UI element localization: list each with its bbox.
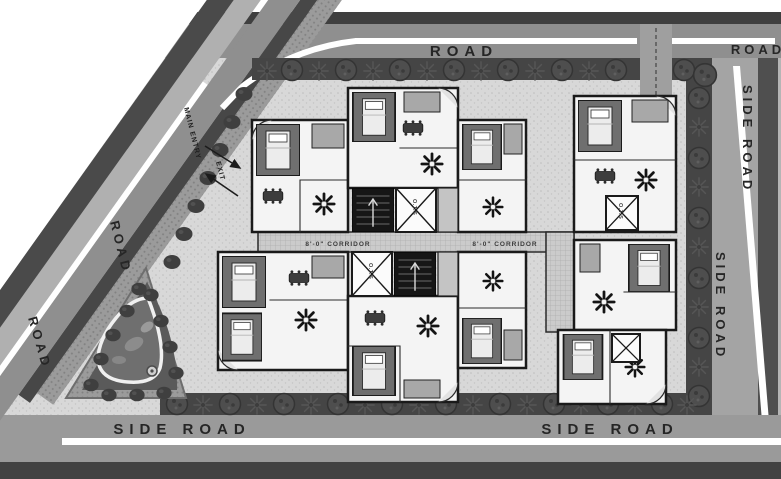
ots-shaft: O.T.S [606, 196, 638, 230]
driveway [640, 24, 672, 102]
bottom-left-side-road-label: SIDE ROAD [113, 421, 250, 438]
palm-icon [690, 238, 708, 256]
tree-icon [282, 60, 303, 81]
shrub-icon [83, 379, 98, 392]
palm-icon [310, 62, 328, 80]
tree-icon [689, 88, 710, 109]
shrub-icon [164, 255, 181, 269]
apartment-unit-b3 [558, 330, 666, 404]
building-cluster: O.T.S O.T.S O.T.S [218, 88, 676, 404]
site-plan-drawing: ROAD ROAD SIDE ROAD SIDE ROAD SIDE ROAD … [0, 0, 781, 479]
ots-shaft: O.T.S [396, 188, 436, 232]
palm-icon [518, 396, 536, 414]
right-lower-side-road-label: SIDE ROAD [713, 252, 728, 360]
shrub-icon [131, 283, 146, 296]
ots-shaft: O.T.S [352, 252, 392, 296]
apartment-unit-a5 [348, 296, 458, 402]
top-right-road-label: ROAD [731, 42, 781, 57]
palm-icon [248, 396, 266, 414]
staircase [352, 188, 394, 232]
top-road-label: ROAD [430, 43, 498, 60]
palm-icon [258, 62, 276, 80]
right-upper-side-road-label: SIDE ROAD [740, 85, 755, 193]
shrub-icon [200, 171, 217, 185]
link-corridor [546, 232, 574, 332]
tree-icon [689, 148, 710, 169]
tree-icon [552, 60, 573, 81]
palm-icon [302, 396, 320, 414]
tree-icon [498, 60, 519, 81]
ots-label: O.T.S [617, 203, 623, 219]
ots-shaft [612, 334, 640, 362]
shrub-icon [153, 315, 168, 328]
palm-icon [472, 62, 490, 80]
core-row-upper: O.T.S [352, 188, 458, 232]
shrub-icon [162, 341, 177, 354]
apartment-unit-a6 [458, 252, 526, 368]
shrub-icon [119, 305, 134, 318]
tree-icon [390, 60, 411, 81]
tree-icon [674, 60, 695, 81]
palm-icon [418, 62, 436, 80]
shrub-icon [105, 329, 120, 342]
apartment-unit-b2 [574, 240, 676, 330]
tree-icon [274, 394, 295, 415]
bottom-right-side-road-label: SIDE ROAD [541, 421, 678, 438]
palm-icon [690, 298, 708, 316]
apartment-unit-a3 [458, 120, 526, 232]
palm-icon [194, 396, 212, 414]
lane-stripe [62, 438, 781, 445]
apartment-unit-b1: O.T.S [574, 96, 676, 232]
ots-label: O.T.S [367, 263, 373, 279]
shrub-icon [236, 87, 253, 101]
palm-icon [690, 178, 708, 196]
shrub-icon [101, 389, 116, 402]
corridor-left-label: 8'-0" CORRIDOR [305, 241, 370, 248]
tree-icon [689, 386, 710, 407]
shrub-icon [176, 227, 193, 241]
tree-icon [220, 394, 241, 415]
shrub-icon [129, 389, 144, 402]
tree-icon [328, 394, 349, 415]
tree-icon [490, 394, 511, 415]
apartment-unit-a2 [348, 88, 458, 188]
palm-icon [690, 118, 708, 136]
palm-icon [678, 396, 696, 414]
shrub-icon [224, 115, 241, 129]
corridor-right-label: 8'-0" CORRIDOR [472, 241, 537, 248]
shrub-icon [168, 367, 183, 380]
palm-icon [690, 358, 708, 376]
staircase [394, 252, 436, 296]
tree-icon [606, 60, 627, 81]
shrub-icon [156, 387, 171, 400]
apartment-unit-a4 [218, 252, 348, 370]
core-row-lower: O.T.S [352, 252, 458, 296]
tree-icon [689, 208, 710, 229]
apartment-unit-a1 [252, 120, 348, 232]
tree-icon [336, 60, 357, 81]
tree-icon [689, 268, 710, 289]
ots-label: O.T.S [411, 199, 417, 215]
tree-icon [689, 328, 710, 349]
tree-icon [444, 60, 465, 81]
palm-icon [526, 62, 544, 80]
shrub-icon [188, 199, 205, 213]
right-side-road: SIDE ROAD SIDE ROAD [712, 58, 781, 462]
site-plan-page: ROAD ROAD SIDE ROAD SIDE ROAD SIDE ROAD … [0, 0, 781, 479]
tree-icon [694, 64, 717, 87]
palm-icon [580, 62, 598, 80]
shrub-icon [93, 353, 108, 366]
palm-icon [464, 396, 482, 414]
palm-icon [364, 62, 382, 80]
bottom-road: SIDE ROAD SIDE ROAD [0, 415, 781, 479]
